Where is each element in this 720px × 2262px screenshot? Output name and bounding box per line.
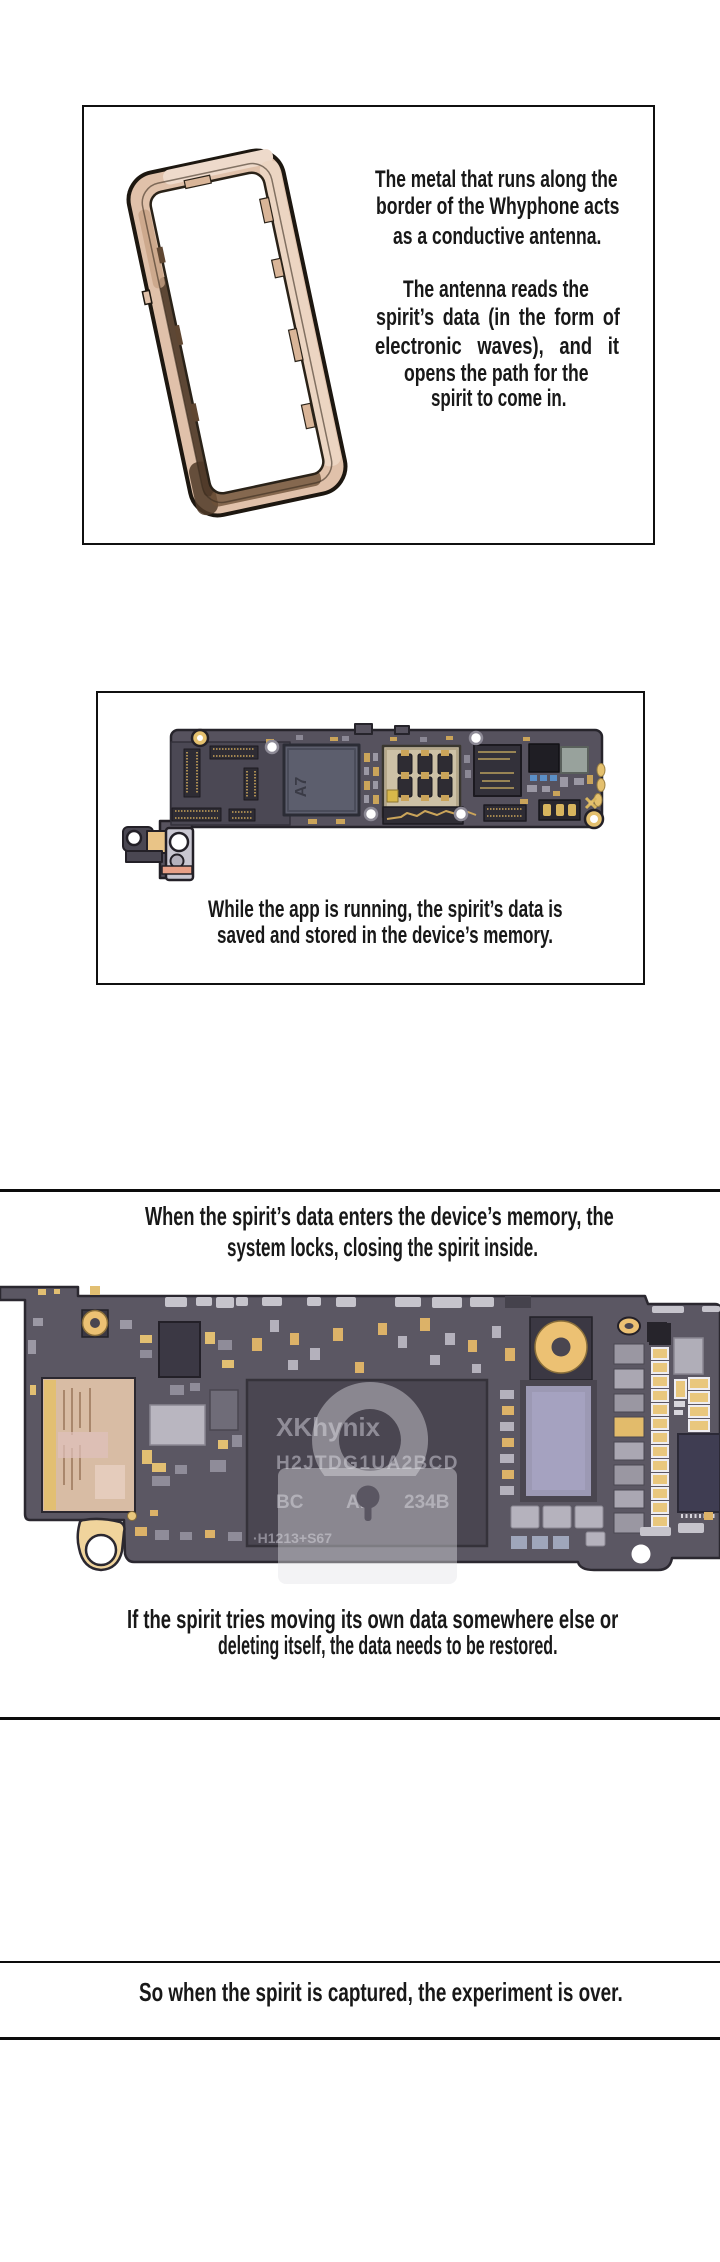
svg-text:A7: A7 <box>293 777 310 798</box>
